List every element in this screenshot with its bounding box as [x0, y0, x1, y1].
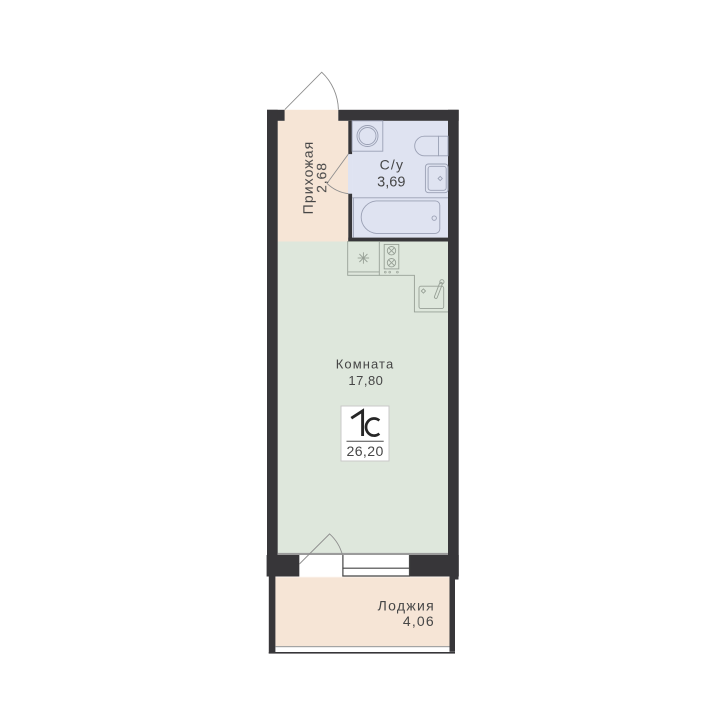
svg-text:26,20: 26,20 — [346, 443, 383, 459]
svg-text:Лоджия: Лоджия — [378, 598, 435, 614]
svg-text:3,69: 3,69 — [377, 175, 405, 191]
svg-text:2,68: 2,68 — [313, 162, 329, 193]
svg-text:С/у: С/у — [380, 157, 405, 173]
svg-text:Комната: Комната — [336, 357, 395, 372]
svg-text:17,80: 17,80 — [348, 373, 383, 388]
svg-text:4,06: 4,06 — [403, 613, 435, 629]
